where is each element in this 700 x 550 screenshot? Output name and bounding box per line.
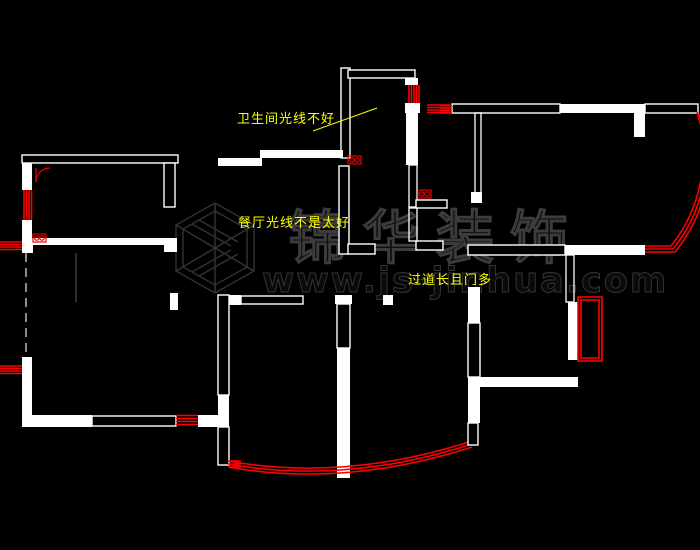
door-swing-arc (36, 168, 50, 182)
window-hatch-bottom-left-wall (176, 416, 198, 425)
window-hatch-left-vertical (24, 190, 32, 220)
annotation-text: 过道长且门多 (408, 272, 492, 288)
floor-plan-canvas: 锦华装饰 www.js-jinhua.com (0, 0, 700, 550)
bay-window-right-rect (578, 297, 602, 361)
window-hatch-left-horizontal (0, 242, 22, 250)
window-hatch-bath-vertical (409, 85, 419, 103)
room-bottom-left-walls (22, 357, 229, 465)
annotation-text: 餐厅光线不是太好 (238, 215, 350, 231)
room-bottom-center-walls (218, 295, 352, 478)
annotation-dining-light: 餐厅光线不是太好 (238, 215, 350, 231)
annotation-corridor: 过道长且门多 (408, 272, 492, 288)
window-hatch-far-left (0, 366, 22, 374)
room-top-left-walls (22, 155, 178, 310)
bay-window-arc-right (645, 112, 700, 252)
cad-floor-plan-screenshot: 锦华装饰 www.js-jinhua.com (0, 0, 700, 550)
double-circle-fixture-icon (418, 190, 431, 198)
annotation-bathroom-light: 卫生间光线不好 (237, 108, 377, 131)
hidden-wall-lines (26, 253, 76, 360)
annotation-text: 卫生间光线不好 (237, 112, 335, 127)
